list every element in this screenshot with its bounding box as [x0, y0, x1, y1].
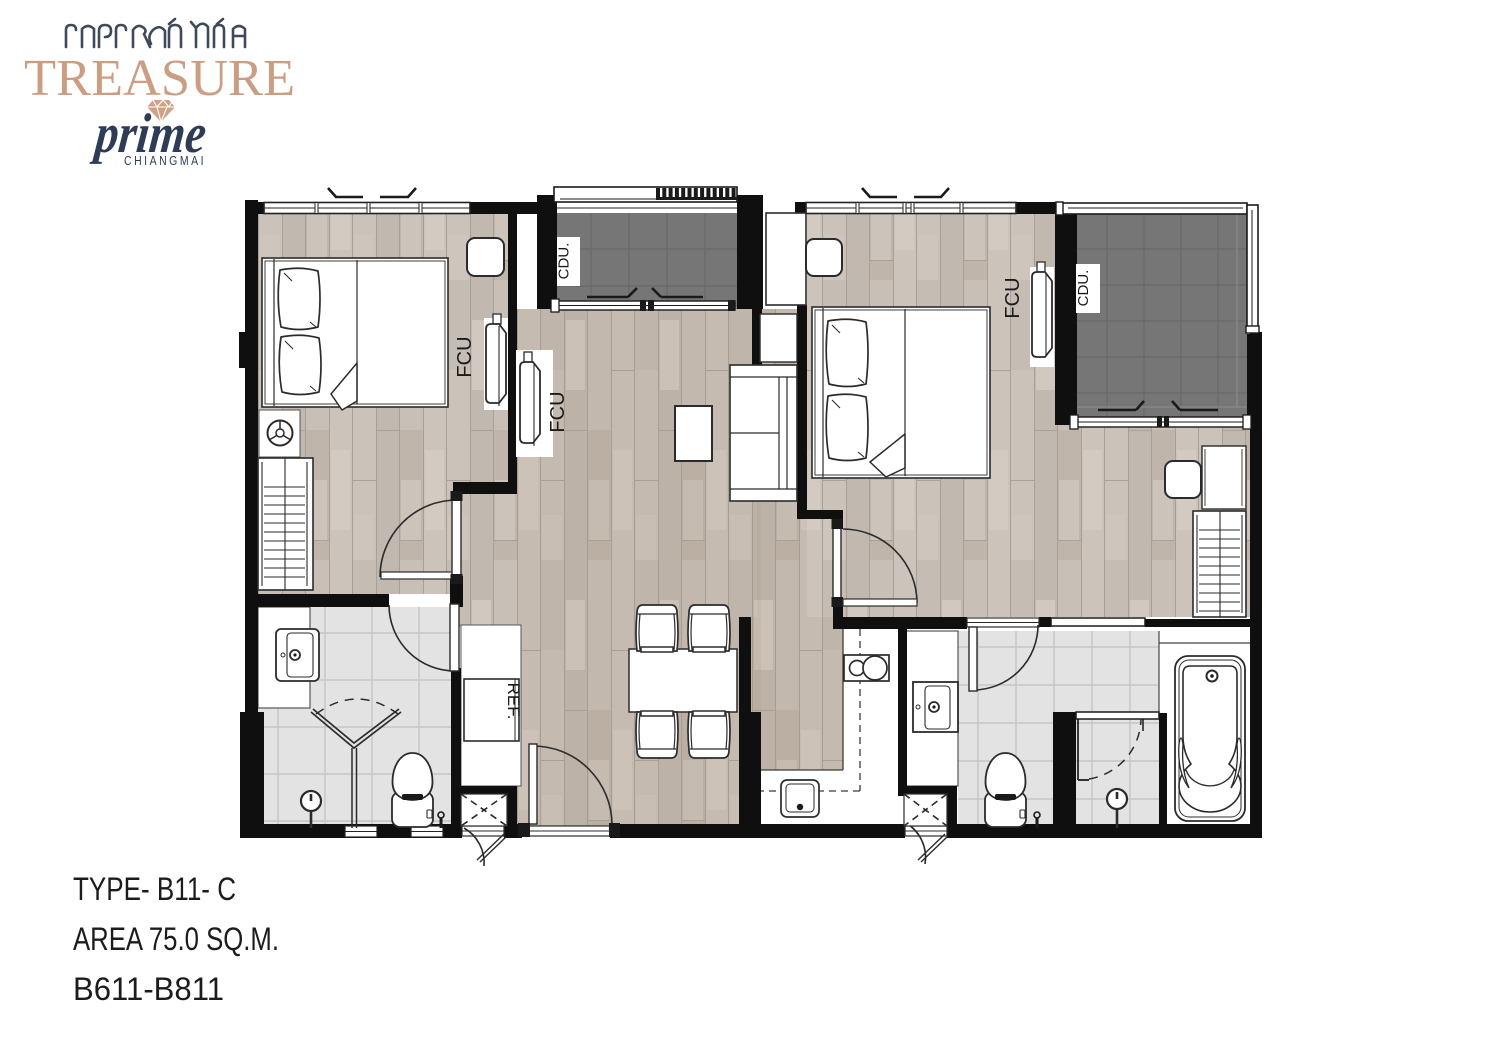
svg-text:FCU: FCU: [454, 336, 476, 377]
svg-text:TYPE- B11- C: TYPE- B11- C: [73, 871, 236, 907]
svg-text:AREA 75.0 SQ.M.: AREA 75.0 SQ.M.: [73, 921, 279, 957]
svg-text:FCU: FCU: [1002, 277, 1024, 318]
svg-text:CHIANGMAI: CHIANGMAI: [124, 154, 206, 168]
svg-text:CDU.: CDU.: [1075, 270, 1092, 307]
svg-text:B611-B811: B611-B811: [73, 971, 224, 1007]
svg-text:FCU: FCU: [547, 391, 569, 432]
svg-text:CDU.: CDU.: [556, 243, 573, 280]
svg-text:TREASURE: TREASURE: [24, 50, 295, 107]
svg-text:REF.: REF.: [504, 683, 523, 720]
